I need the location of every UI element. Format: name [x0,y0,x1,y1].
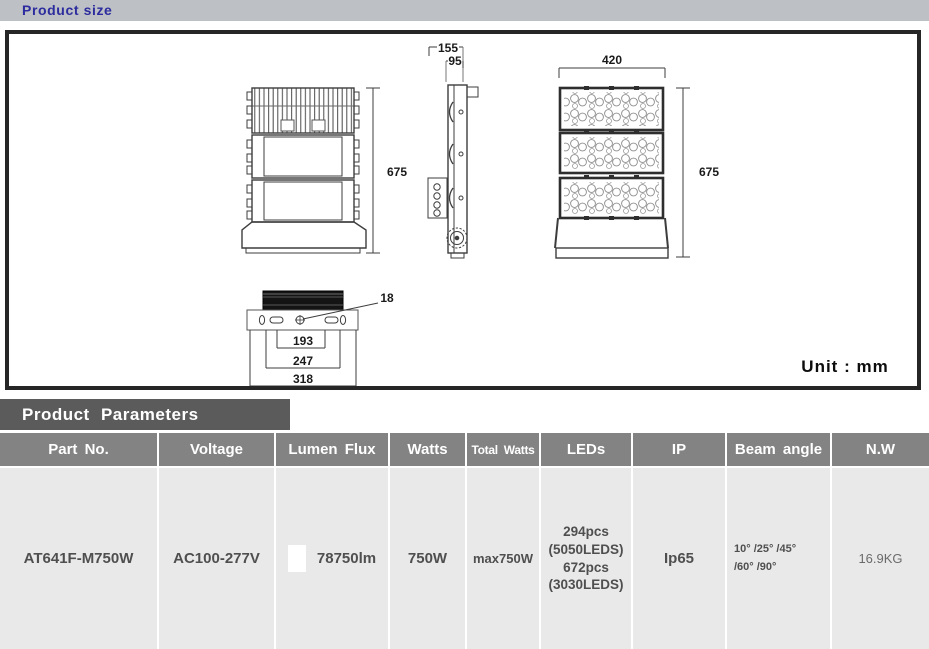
dim-mount-outer-label: 318 [293,372,313,386]
col-header-voltage: Voltage [159,433,276,468]
col-header-ip: IP [633,433,727,468]
dim-side-overall-label: 155 [438,41,458,55]
col-header-lumen-flux: Lumen Flux [276,433,390,468]
cell-lumen-flux: 78750lm [276,468,390,649]
side-view-drawing [428,47,478,258]
product-size-drawing-panel: 675 [5,30,921,390]
cell-leds: 294pcs (5050LEDS) 672pcs (3030LEDS) [541,468,633,649]
beam-angle-line-1: 10° /25° /45° [734,541,796,559]
col-header-watts: Watts [390,433,467,468]
dim-front-width-label: 420 [602,53,622,67]
cell-voltage: AC100-277V [159,468,276,649]
beam-angle-line-2: /60° /90° [734,559,796,577]
dim-front-height-label: 675 [699,165,719,179]
product-parameters-section-bar: Product Parameters [0,399,290,430]
lumen-color-swatch [288,545,306,572]
lumen-flux-value: 78750lm [317,550,376,567]
leds-count-2: 672pcs [548,559,623,577]
col-header-beam-angle: Beam angle [727,433,832,468]
leds-count-1: 294pcs [548,523,623,541]
product-drawing: 675 [9,34,917,386]
dim-hole-label: 18 [380,291,394,305]
col-header-total-watts: Total Watts [467,433,541,468]
leds-type-1: (5050LEDS) [548,541,623,559]
page-header-bar: Product size [0,0,929,21]
cell-nw: 16.9KG [832,468,929,649]
cell-ip: Ip65 [633,468,727,649]
col-header-nw: N.W [832,433,929,468]
front-view-drawing [555,68,690,258]
unit-label: Unit : mm [801,357,888,376]
leds-type-2: (3030LEDS) [548,576,623,594]
cell-watts: 750W [390,468,467,649]
dim-side-body-label: 95 [448,54,462,68]
product-parameters-title: Product Parameters [0,399,290,430]
dim-mount-inner-label: 193 [293,334,313,348]
parameters-table: Part No. Voltage Lumen Flux Watts Total … [0,433,929,649]
dim-back-height-label: 675 [387,165,407,179]
cell-total-watts: max750W [467,468,541,649]
dim-mount-mid-label: 247 [293,354,313,368]
page-title: Product size [0,0,929,21]
cell-part-no: AT641F-M750W [0,468,159,649]
cell-beam-angle: 10° /25° /45° /60° /90° [727,468,832,649]
col-header-part-no: Part No. [0,433,159,468]
back-view-drawing [242,88,380,253]
col-header-leds: LEDs [541,433,633,468]
